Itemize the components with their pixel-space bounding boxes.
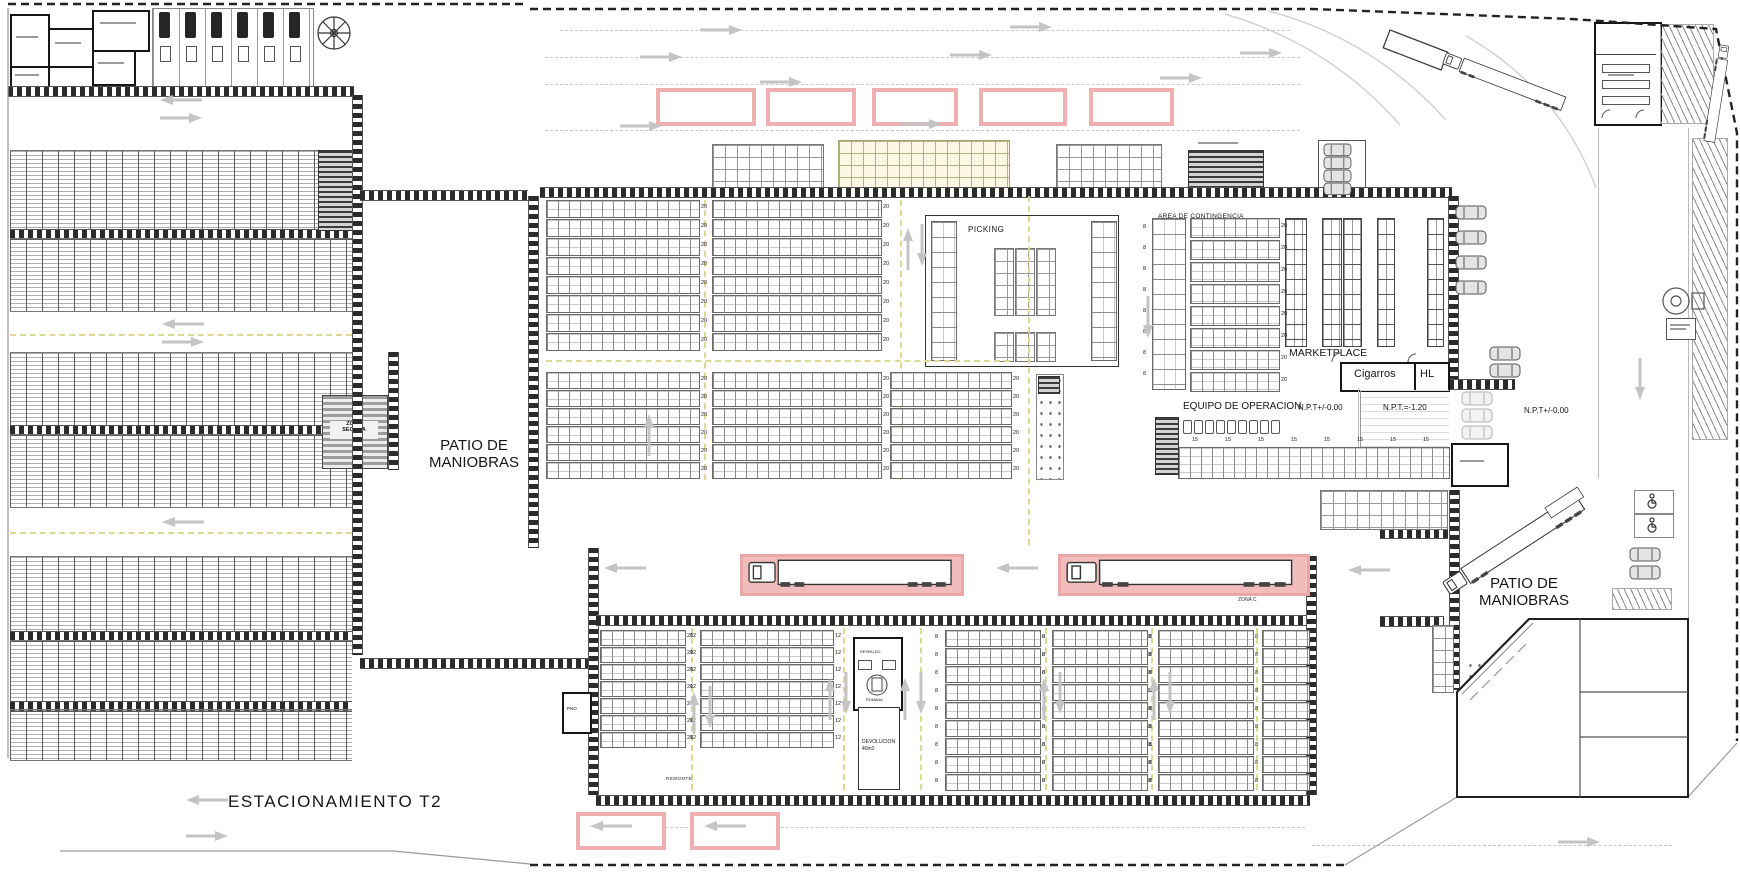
pallet-rack-row	[1052, 774, 1148, 791]
pallet-rack-row	[546, 257, 700, 275]
rack-capacity-label: 8	[1255, 706, 1258, 712]
picking-perimeter-racks	[931, 221, 957, 361]
npt-exterior-label: N.P.T+/-0,00	[1524, 407, 1569, 416]
rack-capacity-label: 12	[835, 701, 841, 707]
pallet-rack-row	[890, 426, 1012, 443]
picking-cluster	[994, 332, 1014, 362]
dock-wall-right	[1448, 196, 1459, 388]
rack-capacity-label: 8	[1148, 634, 1151, 640]
wall-crenellated	[1449, 379, 1515, 390]
rack-capacity-label: 20	[883, 376, 889, 382]
office-table	[1640, 650, 1668, 666]
rack-capacity-label: 20	[1013, 448, 1019, 454]
pallet-rack-row	[945, 666, 1041, 683]
rack-capacity-label: 20	[701, 448, 707, 454]
devolucion-area-label: 40m2	[862, 747, 875, 753]
pallet-rack-row	[712, 333, 882, 351]
rack-capacity-label: 20	[1281, 333, 1287, 339]
pallet-rack-row	[712, 372, 882, 389]
pallet-rack-row	[1262, 666, 1310, 683]
rack-capacity-label: 20	[1013, 394, 1019, 400]
trailer-parking-row	[10, 434, 352, 508]
pallet-rack-row	[1158, 720, 1254, 737]
lane-marking	[1312, 845, 1672, 846]
contingencia-cells	[1152, 218, 1186, 390]
rack-capacity-label: 20	[1281, 377, 1287, 383]
illegible-label	[1670, 328, 1686, 330]
highlighted-dock-position	[576, 812, 666, 850]
trailer-parking-row	[10, 640, 352, 702]
marketplace-rack-column	[1322, 218, 1342, 347]
pallet-rack-row	[546, 444, 700, 461]
pallet-rack-row	[1158, 630, 1254, 647]
rack-bay-count-label: 15	[1357, 437, 1363, 443]
rack-capacity-label: 12	[690, 684, 696, 690]
handicap-parking-stall	[1634, 490, 1674, 514]
dock-wall-left-lower	[588, 548, 599, 795]
car-parking-stalls	[1318, 140, 1366, 192]
truck-top-view	[185, 12, 196, 38]
rack-capacity-label: 20	[883, 204, 889, 210]
aisle-marking	[843, 628, 845, 790]
angled-parking-strip	[1692, 138, 1728, 440]
trailer-parking-row	[10, 352, 352, 426]
rack-capacity-label: 20	[701, 318, 707, 324]
aisle-marking	[546, 360, 1010, 362]
rack-capacity-label: 20	[1281, 355, 1287, 361]
pallet-rack-row	[1262, 684, 1310, 701]
illegible-room-label	[1480, 700, 1500, 702]
illegible-room-label	[55, 42, 81, 44]
rack-capacity-label: 20	[1281, 267, 1287, 273]
pallet-rack-row	[600, 732, 686, 748]
office-table	[1606, 712, 1634, 728]
highlighted-dock-position	[766, 88, 856, 126]
rack-capacity-label: 20	[883, 280, 889, 286]
pallet-rack-row	[945, 702, 1041, 719]
walkway-crenellated	[360, 190, 528, 201]
service-room	[10, 14, 50, 68]
lane-marking	[10, 532, 352, 534]
pallet-rack-row	[1158, 648, 1254, 665]
wash-bay-mark	[290, 46, 301, 62]
illegible-room-label	[1608, 74, 1634, 76]
rack-capacity-label: 20	[1013, 466, 1019, 472]
rack-capacity-label: 8	[1042, 688, 1045, 694]
wash-bay-mark	[212, 46, 223, 62]
rack-capacity-label: 12	[690, 701, 696, 707]
pallet-rack-row	[600, 715, 686, 731]
picking-cluster	[1036, 248, 1056, 316]
rack-capacity-label: 8	[1255, 742, 1258, 748]
rack-bay-count-label: 15	[1291, 437, 1297, 443]
marketplace-rack-column	[1285, 218, 1307, 347]
rack-capacity-label: 8	[1148, 706, 1151, 712]
locker-bench	[1602, 64, 1650, 73]
pallet-rack-row	[700, 647, 834, 663]
office-table	[1648, 712, 1676, 728]
rack-bay-count-label: 15	[1258, 437, 1264, 443]
rack-capacity-label: 8	[1042, 760, 1045, 766]
rack-capacity-label: 8	[935, 706, 938, 712]
pallet-rack-row	[1052, 666, 1148, 683]
staging-block-yellow	[838, 140, 1010, 190]
romana-label: ROMANA	[866, 698, 883, 702]
highlighted-truck-lane-left	[740, 554, 964, 596]
pallet-rack-row	[945, 684, 1041, 701]
pallet-rack-row	[700, 732, 834, 748]
contingencia-cell-label: 8	[1143, 245, 1146, 251]
rack-capacity-label: 8	[1148, 724, 1151, 730]
trailer-parking-row	[10, 150, 352, 230]
rack-capacity-label: 20	[883, 412, 889, 418]
pallet-rack-row	[1262, 648, 1310, 665]
pallet-rack-row	[1158, 774, 1254, 791]
rack-capacity-label: 20	[701, 376, 707, 382]
marketplace-rack-column	[1343, 218, 1362, 347]
rack-capacity-label: 20	[883, 337, 889, 343]
npt-interior-label: N.P.T+/-0.00	[1298, 404, 1343, 413]
rack-bay-count-label: 15	[1324, 437, 1330, 443]
pallet-rack-row	[600, 647, 686, 663]
pallet-rack-row	[546, 219, 700, 237]
aisle-marking	[1028, 196, 1030, 545]
pallet-rack-row	[1052, 684, 1148, 701]
locker-bench	[1602, 96, 1650, 105]
pallet-rack-row	[1262, 774, 1310, 791]
pallet-rack-row	[890, 444, 1012, 461]
rack-capacity-label: 12	[835, 650, 841, 656]
rack-capacity-label: 20	[701, 412, 707, 418]
workstation-chair	[1216, 420, 1225, 434]
pallet-rack-row	[1262, 738, 1310, 755]
service-room	[92, 50, 136, 86]
rack-capacity-label: 12	[690, 735, 696, 741]
pallet-rack-row	[546, 372, 700, 389]
pallet-rack-row	[712, 295, 882, 313]
lane-marking	[560, 30, 1290, 31]
pallet-rack-row	[546, 276, 700, 294]
dock-wall-bottom	[596, 795, 1310, 806]
highlighted-dock-position	[979, 88, 1067, 126]
pallet-rack-row	[1190, 218, 1280, 238]
rack-capacity-label: 20	[883, 466, 889, 472]
rack-capacity-label: 20	[701, 280, 707, 286]
zona-c-label: ZONA C	[1238, 598, 1257, 604]
rack-capacity-label: 20	[1013, 430, 1019, 436]
dock-wall-left-upper	[528, 196, 539, 548]
pallet-rack-row	[600, 698, 686, 714]
pallet-rack-row	[546, 390, 700, 407]
pallet-rack-row	[1190, 262, 1280, 282]
rack-capacity-label: 8	[935, 778, 938, 784]
illegible-room-label	[15, 74, 39, 76]
truck-top-view	[289, 12, 300, 38]
rack-capacity-label: 20	[701, 430, 707, 436]
rack-capacity-label: 20	[701, 261, 707, 267]
pallet-rack-row	[546, 333, 700, 351]
contingencia-cell-label: 8	[1143, 350, 1146, 356]
dock-staging-block	[1320, 490, 1448, 530]
aisle-marking	[920, 628, 922, 790]
patio-maniobras-right-label: PATIO DE MANIOBRAS	[1470, 576, 1578, 610]
lot-boundary-wall	[388, 352, 399, 470]
pallet-rack-row	[1262, 630, 1310, 647]
rack-capacity-label: 12	[835, 735, 841, 741]
rack-capacity-label: 20	[1281, 311, 1287, 317]
pno-room	[562, 692, 592, 734]
rack-capacity-label: 12	[690, 633, 696, 639]
pallet-rack-row	[600, 630, 686, 646]
office-table	[1606, 752, 1638, 770]
angled-parking-strip	[1660, 24, 1714, 124]
staging-block	[1056, 144, 1162, 190]
trailer-parking-row	[10, 709, 352, 761]
pallet-rack-row	[1052, 630, 1148, 647]
pallet-rack-row	[546, 314, 700, 332]
highlighted-dock-position	[872, 88, 958, 126]
illegible-room-label	[98, 62, 124, 64]
wash-bay-mark	[186, 46, 197, 62]
workstation-chair	[1238, 420, 1247, 434]
lane-marking	[545, 84, 1300, 85]
rack-capacity-label: 20	[701, 204, 707, 210]
rack-capacity-label: 8	[1255, 688, 1258, 694]
illegible-room-label	[1460, 460, 1484, 462]
pallet-rack-row	[712, 444, 882, 461]
pallet-rack-row	[1052, 702, 1148, 719]
rack-capacity-label: 20	[1013, 376, 1019, 382]
crosswalk-hatch	[1612, 588, 1672, 610]
trailer-parking-row	[10, 238, 352, 312]
rack-capacity-label: 8	[1255, 652, 1258, 658]
pallet-rack-row	[1052, 738, 1148, 755]
pallet-rack-row	[945, 774, 1041, 791]
wash-bay-mark	[264, 46, 275, 62]
rack-capacity-label: 20	[701, 242, 707, 248]
pallet-rack-row	[546, 462, 700, 479]
pallet-rack-row	[1262, 720, 1310, 737]
truck-top-view	[211, 12, 222, 38]
workstation-chair	[1260, 420, 1269, 434]
rack-capacity-label: 8	[1042, 652, 1045, 658]
lot-boundary-wall	[352, 95, 363, 655]
highlighted-dock-position	[1089, 88, 1174, 126]
npt-foso-label: N.P.T.=-1.20	[1383, 404, 1427, 413]
rack-capacity-label: 20	[883, 318, 889, 324]
rack-capacity-label: 20	[701, 337, 707, 343]
pallet-rack-row	[712, 426, 882, 443]
pallet-rack-row	[1190, 284, 1280, 304]
pallet-rack-row	[1158, 666, 1254, 683]
truck-top-view	[237, 12, 248, 38]
contingencia-cell-label: 8	[1143, 287, 1146, 293]
rack-capacity-label: 8	[1042, 670, 1045, 676]
pallet-rack-row	[1262, 702, 1310, 719]
pallet-rack-row	[1052, 720, 1148, 737]
illegible-room-label	[100, 22, 136, 24]
picking-label: PICKING	[968, 226, 1004, 235]
hl-label: HL	[1420, 368, 1434, 380]
pallet-rack-row	[1158, 702, 1254, 719]
lane-marking	[545, 130, 1300, 131]
rack-capacity-label: 20	[883, 394, 889, 400]
pallet-rack-row	[1190, 240, 1280, 260]
pallet-rack-row	[945, 720, 1041, 737]
workstation-chair	[1271, 420, 1280, 434]
illegible-label	[1198, 142, 1238, 144]
wall-crenellated	[8, 86, 354, 97]
pallet-rack-row	[712, 238, 882, 256]
contingencia-cell-label: 8	[1143, 371, 1146, 377]
office-table	[1606, 650, 1634, 666]
pallet-rack-row	[700, 630, 834, 646]
rack-capacity-label: 8	[1255, 670, 1258, 676]
rack-capacity-label: 8	[935, 670, 938, 676]
pallet-rack-row	[1158, 684, 1254, 701]
cigarros-label: Cigarros	[1354, 368, 1396, 380]
rack-capacity-label: 8	[1148, 652, 1151, 658]
picking-cluster	[1036, 332, 1056, 362]
rack-capacity-label: 12	[835, 633, 841, 639]
office-desk-area	[1466, 660, 1566, 788]
respaldo-label: RESPALDO	[860, 650, 880, 654]
contingencia-cell-label: 8	[1143, 308, 1146, 314]
rack-capacity-label: 8	[935, 742, 938, 748]
pallet-rack-row	[712, 390, 882, 407]
rack-capacity-label: 8	[935, 634, 938, 640]
pallet-rack-row	[1052, 756, 1148, 773]
rack-capacity-label: 12	[690, 667, 696, 673]
wash-bay-mark	[238, 46, 249, 62]
pallet-rack-row	[1052, 648, 1148, 665]
full-pallet-block	[1188, 150, 1264, 190]
pallet-rack-row	[700, 698, 834, 714]
workstation-chair	[1183, 420, 1192, 434]
marketplace-rack-column	[1427, 218, 1444, 347]
rack-capacity-label: 20	[1013, 412, 1019, 418]
respaldo-desk	[882, 660, 896, 670]
fan-icon	[318, 17, 350, 49]
rack-capacity-label: 8	[1255, 724, 1258, 730]
rack-bay-count-label: 15	[1192, 437, 1198, 443]
picking-cluster	[1015, 248, 1035, 316]
rack-capacity-label: 8	[1042, 706, 1045, 712]
pallet-rack-row	[1190, 306, 1280, 326]
pallet-rack-row	[712, 462, 882, 479]
pallet-rack-row	[546, 200, 700, 218]
pallet-rack-row	[700, 715, 834, 731]
marketplace-rack-column	[1377, 218, 1395, 347]
staging-block	[712, 144, 824, 190]
truck-top-view	[159, 12, 170, 38]
dock-staging-block	[1432, 625, 1454, 693]
wash-bay-mark	[160, 46, 171, 62]
vestibule-room	[1451, 443, 1509, 487]
picking-cluster	[1015, 332, 1035, 362]
pallet-rack-row	[712, 257, 882, 275]
battery-charging-station	[1155, 417, 1179, 475]
service-room	[48, 28, 94, 68]
rack-capacity-label: 12	[835, 684, 841, 690]
pallet-rack-row	[890, 408, 1012, 425]
trailer-parking-row	[10, 556, 352, 632]
rack-bay-count-label: 15	[1225, 437, 1231, 443]
illegible-label	[1670, 324, 1690, 326]
rack-capacity-label: 12	[690, 718, 696, 724]
rack-capacity-label: 8	[935, 688, 938, 694]
rack-capacity-label: 8	[935, 724, 938, 730]
rack-capacity-label: 8	[1148, 688, 1151, 694]
rack-capacity-label: 8	[1255, 634, 1258, 640]
pallet-rack-row	[600, 681, 686, 697]
rack-capacity-label: 8	[1042, 778, 1045, 784]
rack-capacity-label: 20	[701, 299, 707, 305]
estacionamiento-t2-label: ESTACIONAMIENTO T2	[228, 792, 442, 811]
lane-marking	[545, 57, 1300, 58]
respaldo-desk	[858, 660, 872, 670]
pallet-rack-row	[945, 648, 1041, 665]
interior-wall	[1596, 54, 1656, 55]
illegible-room-label	[1612, 680, 1640, 682]
rack-capacity-label: 8	[935, 652, 938, 658]
rack-capacity-label: 20	[883, 430, 889, 436]
rack-capacity-label: 20	[883, 448, 889, 454]
pallet-rack-row	[712, 276, 882, 294]
site-plan: ZONA SEGURA	[0, 0, 1740, 882]
pallet-rack-row	[945, 756, 1041, 773]
contingencia-cell-label: 8	[1143, 329, 1146, 335]
wall-mid	[596, 615, 1308, 626]
handicap-parking-stall	[1634, 514, 1674, 538]
pallet-rack-row	[1190, 372, 1280, 392]
rack-capacity-label: 8	[1148, 670, 1151, 676]
pallet-rack-row	[700, 681, 834, 697]
workstation-chair	[1227, 420, 1236, 434]
aisle-marking	[1045, 628, 1047, 790]
pallet-rack-row	[890, 390, 1012, 407]
highlighted-dock-position	[656, 88, 756, 126]
pallet-rack-row	[546, 426, 700, 443]
equipo-operacion-label: EQUIPO DE OPERACION	[1183, 401, 1301, 412]
illegible-room-label	[16, 36, 38, 38]
workstation-chair	[1194, 420, 1203, 434]
pallet-rack-row	[1190, 350, 1280, 370]
walkway-crenellated	[360, 658, 590, 669]
rack-capacity-label: 12	[690, 650, 696, 656]
equipo-long-rack	[1178, 447, 1450, 479]
rack-bay-count-label: 15	[1390, 437, 1396, 443]
pallet-rack-row	[890, 462, 1012, 479]
highlighted-dock-position	[690, 812, 780, 850]
rack-capacity-label: 20	[701, 466, 707, 472]
picking-cluster	[994, 248, 1014, 316]
rack-capacity-label: 8	[1042, 634, 1045, 640]
rack-capacity-label: 20	[883, 299, 889, 305]
pallet-rack-row	[712, 219, 882, 237]
pallet-rack-row	[700, 664, 834, 680]
pallet-rack-row	[1158, 756, 1254, 773]
illegible-room-label	[1612, 700, 1634, 702]
highlighted-truck-lane-right	[1058, 554, 1310, 596]
picking-perimeter-racks	[1091, 221, 1117, 361]
rack-capacity-label: 8	[1042, 724, 1045, 730]
pallet-rack-row	[546, 295, 700, 313]
rack-capacity-label: 8	[1148, 760, 1151, 766]
locker-bench	[1602, 80, 1650, 89]
workstation-chair	[1249, 420, 1258, 434]
occupied-trailer-block	[318, 150, 354, 231]
